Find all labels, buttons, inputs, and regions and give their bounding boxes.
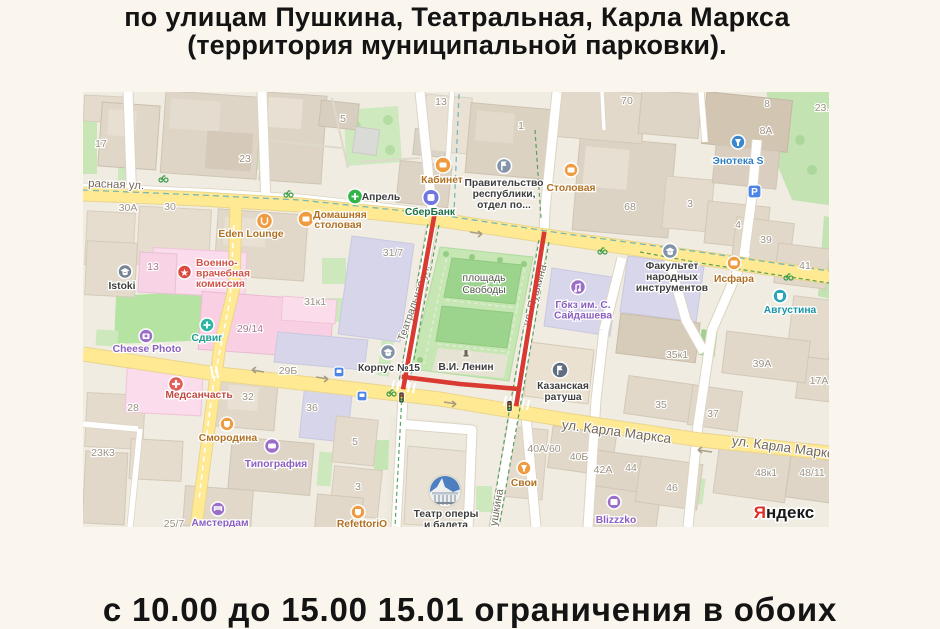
svg-text:Казанскаяратуша: Казанскаяратуша <box>537 381 589 403</box>
svg-text:5: 5 <box>340 113 346 125</box>
svg-text:4: 4 <box>735 219 741 231</box>
svg-text:5: 5 <box>352 436 358 448</box>
svg-text:Амстердам: Амстердам <box>191 518 248 527</box>
svg-text:8: 8 <box>764 98 770 110</box>
svg-text:Смородина: Смородина <box>199 433 258 444</box>
svg-text:23: 23 <box>239 153 251 165</box>
svg-text:Факультетнародныхинструментов: Факультетнародныхинструментов <box>636 261 708 294</box>
svg-text:Энотека S: Энотека S <box>713 156 764 167</box>
svg-text:Istoki: Istoki <box>109 281 136 292</box>
svg-text:Корпус №15: Корпус №15 <box>358 363 420 374</box>
svg-text:37: 37 <box>707 408 719 420</box>
svg-text:29/14: 29/14 <box>237 323 263 335</box>
svg-text:31к1: 31к1 <box>304 296 326 308</box>
svg-text:8А: 8А <box>760 125 773 137</box>
svg-text:48/11: 48/11 <box>799 467 825 479</box>
svg-text:Blizzzko: Blizzzko <box>596 515 637 526</box>
svg-text:★: ★ <box>180 268 189 279</box>
svg-text:41: 41 <box>799 260 811 272</box>
svg-text:СберБанк: СберБанк <box>405 206 456 218</box>
svg-text:36: 36 <box>306 402 318 414</box>
svg-text:30: 30 <box>164 201 176 213</box>
svg-text:Eden Lounge: Eden Lounge <box>218 229 283 240</box>
svg-text:32: 32 <box>242 391 254 403</box>
svg-text:Столовая: Столовая <box>546 183 595 194</box>
svg-text:Типография: Типография <box>245 458 307 470</box>
svg-text:35к1: 35к1 <box>666 349 688 361</box>
svg-text:расная ул.: расная ул. <box>88 178 145 192</box>
svg-text:Свои: Свои <box>511 478 537 489</box>
svg-text:1: 1 <box>518 120 524 132</box>
svg-text:48к1: 48к1 <box>755 467 777 479</box>
svg-text:29Б: 29Б <box>279 365 298 377</box>
svg-text:Августина: Августина <box>764 305 817 316</box>
svg-text:Яндекс: Яндекс <box>754 503 814 522</box>
svg-text:13: 13 <box>147 261 159 273</box>
svg-text:3: 3 <box>687 198 693 210</box>
svg-text:Кабинет: Кабинет <box>421 174 463 186</box>
svg-text:В.И. Ленин: В.И. Ленин <box>438 362 493 373</box>
svg-text:42А: 42А <box>594 464 613 476</box>
svg-text:RefettoriO: RefettoriO <box>337 519 387 527</box>
svg-text:17А: 17А <box>810 375 829 387</box>
svg-text:23.: 23. <box>815 102 829 114</box>
svg-text:17: 17 <box>95 138 107 150</box>
svg-text:39: 39 <box>760 234 772 246</box>
svg-text:Сдвиг: Сдвиг <box>192 333 224 344</box>
svg-text:35: 35 <box>655 399 667 411</box>
svg-text:Апрель: Апрель <box>362 192 401 203</box>
svg-text:25/7: 25/7 <box>164 518 185 527</box>
svg-text:68: 68 <box>624 201 636 213</box>
svg-text:30А: 30А <box>119 202 138 214</box>
svg-text:Медсанчасть: Медсанчасть <box>165 390 232 401</box>
svg-text:Исфара: Исфара <box>714 273 754 285</box>
svg-text:P: P <box>751 187 758 198</box>
svg-text:46: 46 <box>666 482 678 494</box>
svg-text:13: 13 <box>435 96 447 108</box>
svg-text:23К3: 23К3 <box>91 447 115 459</box>
svg-text:Cheese Photo: Cheese Photo <box>113 344 182 355</box>
svg-text:28: 28 <box>127 402 139 414</box>
svg-text:39А: 39А <box>753 358 772 370</box>
svg-text:44: 44 <box>625 462 637 474</box>
svg-text:40А/60: 40А/60 <box>527 443 560 455</box>
svg-text:площадьСвободы: площадьСвободы <box>462 273 505 296</box>
svg-text:Домашняястоловая: Домашняястоловая <box>313 210 367 231</box>
svg-text:3: 3 <box>355 481 361 493</box>
svg-text:40Б: 40Б <box>570 451 589 463</box>
svg-text:31/7: 31/7 <box>383 247 404 259</box>
svg-text:Гбкз им. С.Сайдашева: Гбкз им. С.Сайдашева <box>554 299 612 322</box>
svg-text:70: 70 <box>621 95 633 107</box>
